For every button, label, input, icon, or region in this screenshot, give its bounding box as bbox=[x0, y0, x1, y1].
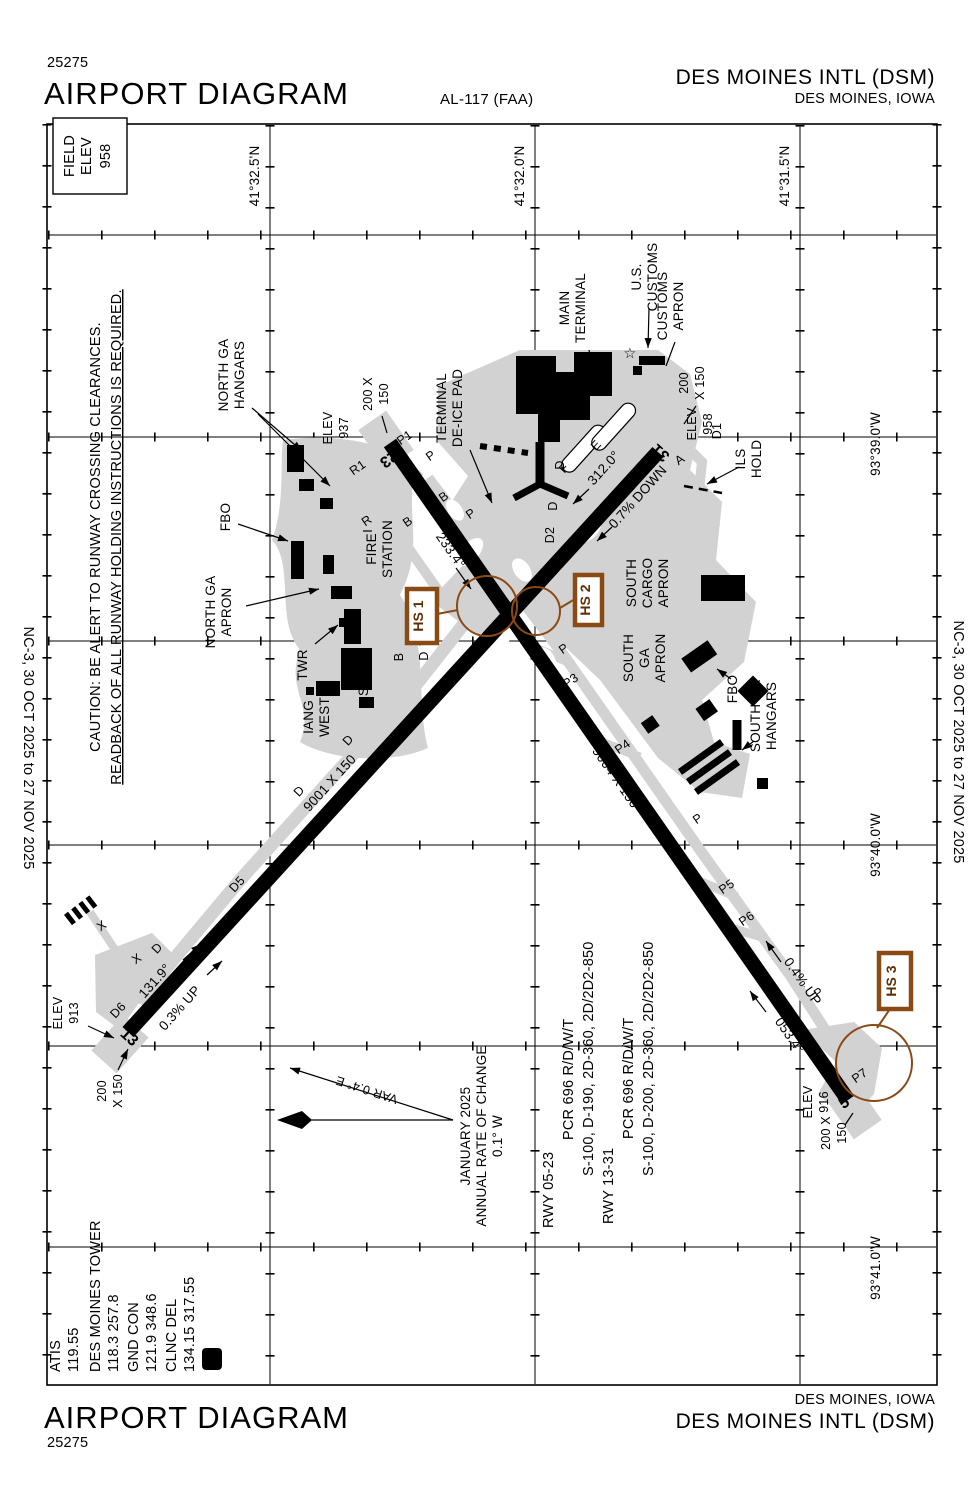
field-elev-value: 958 bbox=[98, 144, 114, 169]
annual-rate-line: 0.1° W bbox=[490, 1115, 505, 1157]
ils-hold-label: ILS bbox=[733, 449, 748, 470]
elev-937: ELEV bbox=[321, 411, 335, 444]
airport-diagram-page: 25275 AIRPORT DIAGRAM AL-117 (FAA) DES M… bbox=[0, 0, 978, 1500]
south-ga-hangars-label: SOUTH GA bbox=[748, 680, 763, 752]
north-ga-hangars-label: HANGARS bbox=[232, 341, 247, 409]
lon-label: 93°40.0'W bbox=[868, 813, 883, 877]
pad-dim-5: 150 bbox=[835, 1122, 849, 1143]
tower-label: DES MOINES TOWER bbox=[88, 1220, 104, 1372]
elev-958: ELEV bbox=[685, 407, 699, 440]
north-ga-hangars-label: NORTH GA bbox=[216, 339, 231, 412]
customs-apron-label: CUSTOMS bbox=[655, 272, 670, 341]
airport-name-bottom: DES MOINES INTL (DSM) bbox=[676, 1410, 935, 1433]
south-ga-apron-label: SOUTH bbox=[621, 634, 636, 682]
clearance-freq: 134.15 317.55 bbox=[182, 1277, 198, 1372]
hotspot-label-3: HS 3 bbox=[883, 965, 899, 996]
caution-note: CAUTION: BE ALERT TO RUNWAY CROSSING CLE… bbox=[88, 289, 125, 784]
caution-line-2: READBACK OF ALL RUNWAY HOLDING INSTRUCTI… bbox=[109, 289, 125, 784]
fire-station-label: FIRE bbox=[364, 533, 379, 565]
south-cargo-apron-label: APRON bbox=[656, 558, 671, 607]
fire-station-label: STATION bbox=[380, 520, 395, 578]
page-title: AIRPORT DIAGRAM bbox=[44, 76, 349, 111]
taxiway-label: D bbox=[546, 501, 560, 510]
rwy-data-line: PCR 696 R/D/W/T bbox=[561, 1019, 577, 1140]
lat-label: 41°32.0'N bbox=[512, 146, 527, 207]
footer: AIRPORT DIAGRAM 25275 DES MOINES, IOWA D… bbox=[44, 1392, 935, 1451]
chart-frame bbox=[47, 124, 937, 1385]
cpdlc-letter: D bbox=[199, 1354, 215, 1364]
left-margin-cycle: NC-3, 30 OCT 2025 to 27 NOV 2025 bbox=[20, 626, 36, 869]
elev-916: ELEV bbox=[801, 1085, 815, 1118]
customs-star-icon: ☆ bbox=[623, 346, 636, 362]
elev-937-value: 937 bbox=[337, 417, 351, 438]
south-cargo-apron-label: SOUTH bbox=[624, 559, 639, 607]
fbo-south-label: FBO bbox=[725, 675, 740, 703]
pad-dim-31: 200 bbox=[677, 372, 691, 393]
runway-data-block: RWY 05-23 PCR 696 R/D/W/T S-100, D-190, … bbox=[541, 942, 657, 1229]
pad-dim-23: 200 X bbox=[361, 377, 375, 411]
pad-dim-23: 150 bbox=[377, 383, 391, 404]
rwy-data-line: RWY 13-31 bbox=[601, 1148, 617, 1224]
magnetic-north-arrowhead bbox=[277, 1111, 312, 1129]
north-ga-apron-label: NORTH GA bbox=[203, 576, 218, 649]
rwy-data-line: PCR 696 R/D/W/T bbox=[621, 1018, 637, 1139]
rwy-data-line: S-100, D-190, 2D-360, 2D/2D2-850 bbox=[581, 942, 597, 1177]
atis-label: ATIS bbox=[48, 1340, 64, 1372]
graticule bbox=[48, 125, 936, 1384]
elev-913-value: 913 bbox=[67, 1002, 81, 1023]
pad-dim-5: 200 X bbox=[819, 1116, 833, 1150]
iang-south-label: SOUTH bbox=[356, 648, 371, 696]
taxiway-label: D1 bbox=[710, 423, 724, 439]
header: 25275 AIRPORT DIAGRAM AL-117 (FAA) DES M… bbox=[44, 55, 935, 111]
main-terminal-label: TERMINAL bbox=[573, 273, 588, 343]
taxiway-label: D2 bbox=[543, 527, 557, 543]
ground-label: GND CON bbox=[126, 1302, 142, 1372]
pad-dim-13: 200 bbox=[95, 1080, 109, 1101]
annual-rate-line: JANUARY 2025 bbox=[458, 1087, 473, 1186]
clearance-label: CLNC DEL bbox=[164, 1299, 180, 1372]
field-elev-line: FIELD bbox=[62, 135, 78, 177]
variation-label: VAR 0.4° E bbox=[334, 1073, 400, 1106]
south-ga-apron-label: GA bbox=[637, 648, 652, 668]
fbo-north-label: FBO bbox=[218, 503, 233, 531]
comm-frequencies-block: ATIS 119.55 DES MOINES TOWER 118.3 257.8… bbox=[48, 1220, 222, 1372]
lat-label: 41°32.5'N bbox=[247, 146, 262, 207]
taxiway-label: B bbox=[392, 653, 406, 662]
hotspot-label-2: HS 2 bbox=[577, 584, 593, 615]
iang-west-label: WEST bbox=[317, 697, 332, 737]
caution-line-1: CAUTION: BE ALERT TO RUNWAY CROSSING CLE… bbox=[88, 322, 104, 752]
us-customs-label: U.S. bbox=[629, 263, 644, 290]
customs-apron-label: APRON bbox=[671, 281, 686, 330]
field-elev-line: ELEV bbox=[79, 137, 95, 175]
tower-freq: 118.3 257.8 bbox=[106, 1294, 122, 1372]
terminal-deice-label: TERMINAL bbox=[434, 373, 449, 443]
elev-913: ELEV bbox=[51, 996, 65, 1029]
procedure-id: AL-117 (FAA) bbox=[440, 91, 533, 108]
taxiway-label: D bbox=[417, 651, 431, 660]
iang-west-label: IANG bbox=[301, 700, 316, 734]
pad-dim-31: X 150 bbox=[693, 366, 707, 400]
lat-label: 41°31.5'N bbox=[777, 146, 792, 207]
chart-number-top: 25275 bbox=[47, 55, 88, 71]
airport-city-bottom: DES MOINES, IOWA bbox=[795, 1392, 936, 1408]
rwy-data-line: S-100, D-200, 2D-360, 2D/2D2-850 bbox=[641, 942, 657, 1177]
annual-rate-line: ANNUAL RATE OF CHANGE bbox=[474, 1045, 489, 1226]
main-terminal-label: MAIN bbox=[557, 291, 572, 326]
iang-south-label: IANG bbox=[340, 655, 355, 689]
hotspot-label-1: HS 1 bbox=[410, 600, 426, 631]
ground-freq: 121.9 348.6 bbox=[144, 1293, 160, 1372]
elev-916-value: 916 bbox=[817, 1091, 831, 1112]
south-cargo-apron-label: CARGO bbox=[640, 558, 655, 609]
lon-label: 93°41.0'W bbox=[868, 1236, 883, 1300]
page-title-bottom: AIRPORT DIAGRAM bbox=[44, 1400, 349, 1435]
tower-label: TWR bbox=[295, 649, 310, 680]
field-elev-box: FIELD ELEV 958 bbox=[53, 118, 127, 194]
taxiway-label: P bbox=[423, 448, 438, 464]
terminal-deice-label: DE-ICE PAD bbox=[450, 369, 465, 447]
taxiway-label: P bbox=[690, 811, 705, 827]
lon-label: 93°39.0'W bbox=[868, 412, 883, 476]
airport-name-top: DES MOINES INTL (DSM) bbox=[676, 66, 935, 89]
right-margin-cycle: NC-3, 30 OCT 2025 to 27 NOV 2025 bbox=[950, 620, 966, 863]
atis-freq: 119.55 bbox=[66, 1328, 82, 1372]
pad-dim-13: X 150 bbox=[111, 1074, 125, 1108]
chart-number-bottom: 25275 bbox=[47, 1435, 88, 1451]
taxiway-label: D bbox=[291, 783, 308, 799]
south-ga-apron-label: APRON bbox=[653, 633, 668, 682]
south-ga-hangars-label: HANGARS bbox=[764, 682, 779, 750]
variation-arrows: VAR 0.4° E JANUARY 2025 ANNUAL RATE OF C… bbox=[277, 1045, 505, 1226]
rwy-data-line: RWY 05-23 bbox=[541, 1152, 557, 1228]
airport-city-top: DES MOINES, IOWA bbox=[795, 91, 936, 107]
ils-hold-label: HOLD bbox=[749, 440, 764, 478]
airport-diagram-chart: 25275 AIRPORT DIAGRAM AL-117 (FAA) DES M… bbox=[0, 0, 978, 1500]
north-ga-apron-label: APRON bbox=[219, 587, 234, 636]
